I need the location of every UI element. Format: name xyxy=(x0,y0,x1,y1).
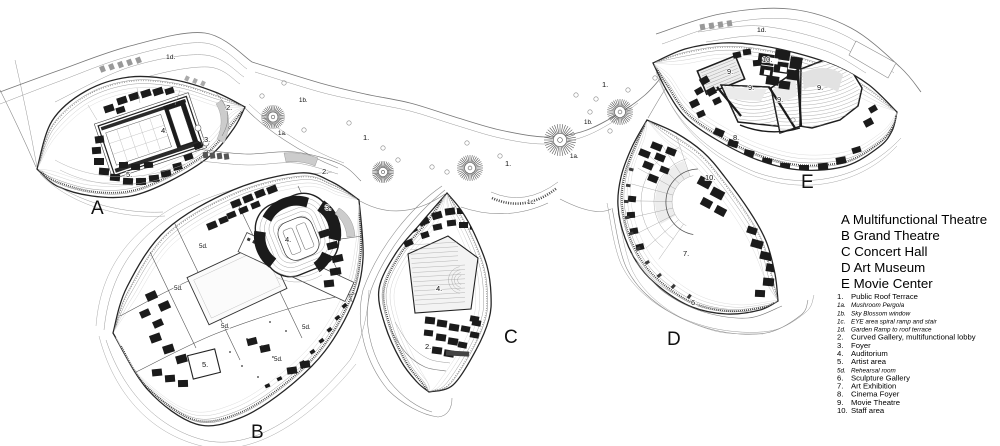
svg-text:1c.: 1c. xyxy=(837,318,845,325)
svg-text:B Grand Theatre: B Grand Theatre xyxy=(841,228,940,243)
svg-text:5d.: 5d. xyxy=(302,324,311,331)
svg-text:Sky Blossom window: Sky Blossom window xyxy=(851,310,911,317)
svg-text:1b.: 1b. xyxy=(837,310,846,317)
svg-text:9.: 9. xyxy=(777,95,783,104)
svg-text:7.: 7. xyxy=(683,249,689,258)
svg-text:1d.: 1d. xyxy=(166,54,176,61)
svg-text:2.: 2. xyxy=(322,167,328,176)
svg-text:1.: 1. xyxy=(363,133,369,142)
svg-text:5d.: 5d. xyxy=(174,285,183,292)
svg-text:10.: 10. xyxy=(705,173,715,182)
svg-text:9.: 9. xyxy=(817,83,823,92)
svg-text:9.: 9. xyxy=(748,83,754,92)
svg-text:3.: 3. xyxy=(325,203,331,212)
svg-text:1.: 1. xyxy=(505,159,511,168)
svg-text:1a.: 1a. xyxy=(570,153,579,160)
svg-text:A: A xyxy=(91,198,104,219)
svg-text:8.: 8. xyxy=(733,133,739,142)
svg-text:5.: 5. xyxy=(837,357,843,366)
svg-text:1.: 1. xyxy=(602,80,608,89)
svg-text:5d.: 5d. xyxy=(274,356,283,363)
svg-text:3.: 3. xyxy=(204,135,210,144)
svg-text:E: E xyxy=(801,172,814,193)
svg-text:Public Roof Terrace: Public Roof Terrace xyxy=(851,292,918,301)
svg-text:A Multifunctional Theatre: A Multifunctional Theatre xyxy=(841,212,987,227)
svg-text:4.: 4. xyxy=(161,126,167,135)
svg-text:5d.: 5d. xyxy=(221,323,230,330)
svg-text:1b.: 1b. xyxy=(584,119,593,126)
svg-text:1a.: 1a. xyxy=(278,130,287,137)
svg-text:B: B xyxy=(251,422,264,443)
svg-text:E Movie Center: E Movie Center xyxy=(841,276,933,291)
svg-text:4.: 4. xyxy=(285,235,291,244)
svg-text:Artist area: Artist area xyxy=(851,357,887,366)
svg-text:1d.: 1d. xyxy=(757,27,767,34)
svg-text:5.: 5. xyxy=(126,170,132,179)
svg-text:D Art Museum: D Art Museum xyxy=(841,260,925,275)
svg-text:2.: 2. xyxy=(226,103,232,112)
svg-text:Staff area: Staff area xyxy=(851,406,885,415)
svg-text:C: C xyxy=(504,327,518,348)
svg-text:6.: 6. xyxy=(691,298,697,307)
svg-text:5d.: 5d. xyxy=(199,243,208,250)
svg-text:1c.: 1c. xyxy=(527,199,536,206)
svg-text:EYE area spiral ramp and stair: EYE area spiral ramp and stair xyxy=(851,318,938,325)
svg-text:10.: 10. xyxy=(837,406,848,415)
svg-text:5.: 5. xyxy=(202,360,208,369)
svg-text:1b.: 1b. xyxy=(299,97,308,104)
svg-text:Mushroom Pergola: Mushroom Pergola xyxy=(851,302,905,309)
svg-text:D: D xyxy=(667,329,681,350)
svg-text:1a.: 1a. xyxy=(837,302,846,309)
svg-text:9.: 9. xyxy=(727,67,733,76)
svg-text:2.: 2. xyxy=(425,342,431,351)
svg-text:10.: 10. xyxy=(762,55,772,64)
svg-text:C Concert Hall: C Concert Hall xyxy=(841,244,928,259)
svg-text:1.: 1. xyxy=(837,292,843,301)
svg-text:4.: 4. xyxy=(436,284,442,293)
